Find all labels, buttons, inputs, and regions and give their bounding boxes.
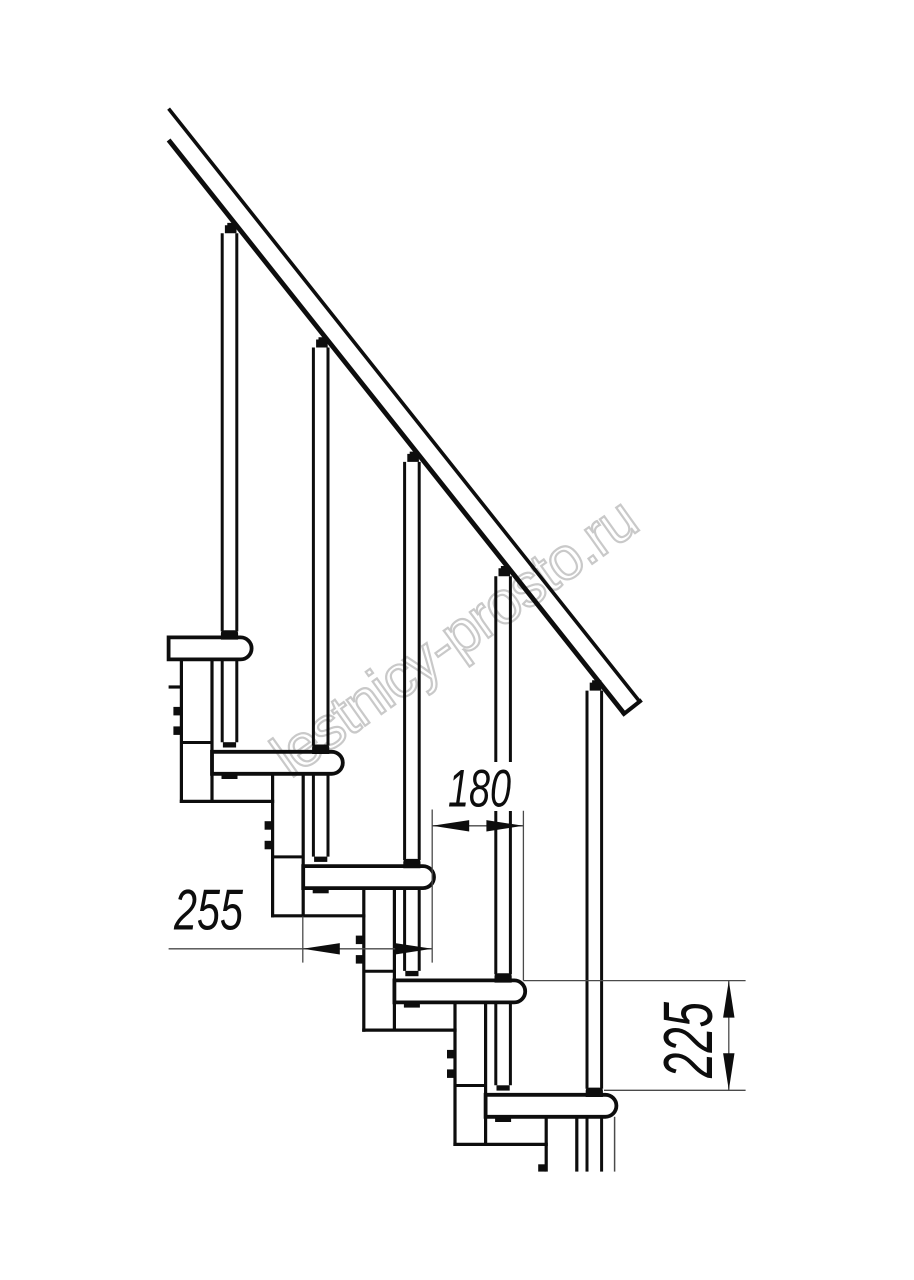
svg-text:225: 225 xyxy=(649,1001,727,1078)
svg-text:180: 180 xyxy=(448,760,511,819)
svg-text:255: 255 xyxy=(173,879,243,943)
